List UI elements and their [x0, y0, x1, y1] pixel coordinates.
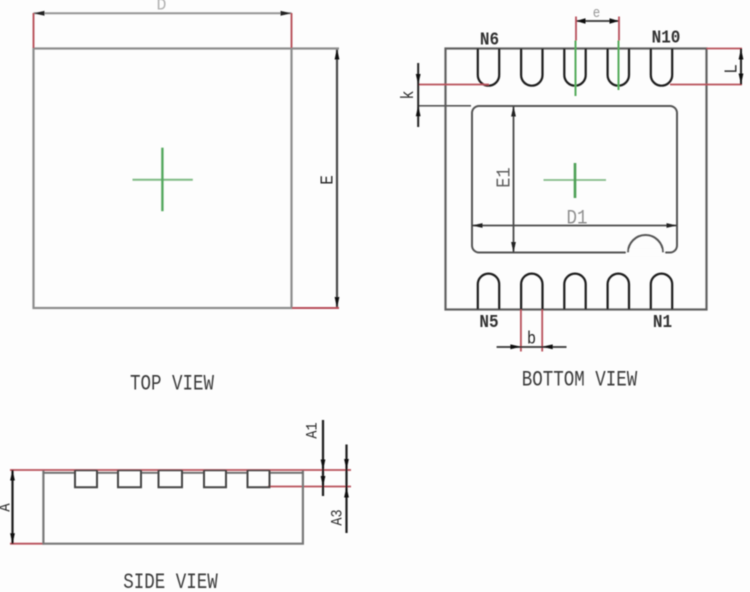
- svg-text:E1: E1: [494, 167, 515, 187]
- svg-text:A3: A3: [330, 509, 347, 525]
- svg-text:E: E: [319, 175, 339, 185]
- svg-text:BOTTOM VIEW: BOTTOM VIEW: [522, 368, 638, 394]
- svg-text:A: A: [0, 502, 15, 511]
- svg-text:N6: N6: [480, 31, 499, 51]
- svg-text:N5: N5: [479, 313, 498, 333]
- svg-text:e: e: [593, 6, 601, 22]
- svg-text:L: L: [723, 64, 743, 74]
- svg-text:D1: D1: [567, 207, 588, 230]
- svg-text:SIDE VIEW: SIDE VIEW: [123, 570, 218, 592]
- svg-text:N1: N1: [653, 313, 672, 333]
- svg-text:D: D: [157, 0, 167, 15]
- svg-text:TOP VIEW: TOP VIEW: [130, 372, 215, 398]
- svg-text:b: b: [527, 329, 536, 348]
- svg-text:A1: A1: [305, 422, 322, 438]
- svg-text:k: k: [399, 90, 418, 99]
- svg-text:N10: N10: [652, 29, 681, 49]
